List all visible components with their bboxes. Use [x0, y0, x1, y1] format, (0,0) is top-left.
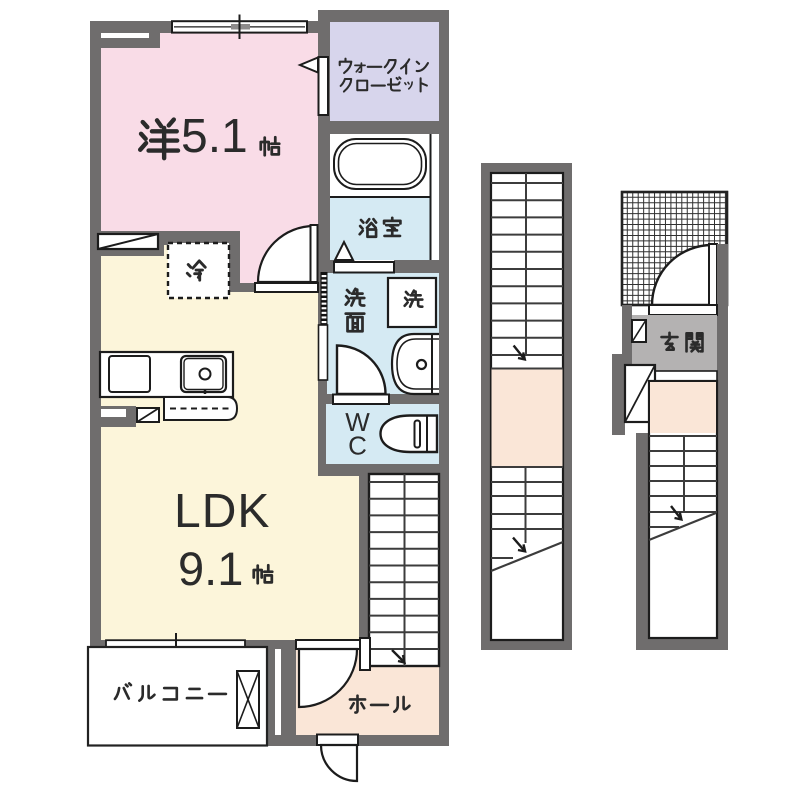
svg-text:9.1: 9.1 [178, 542, 243, 595]
svg-text:5.1: 5.1 [181, 110, 248, 163]
svg-text:LDK: LDK [174, 485, 270, 538]
svg-text:C: C [348, 431, 367, 461]
